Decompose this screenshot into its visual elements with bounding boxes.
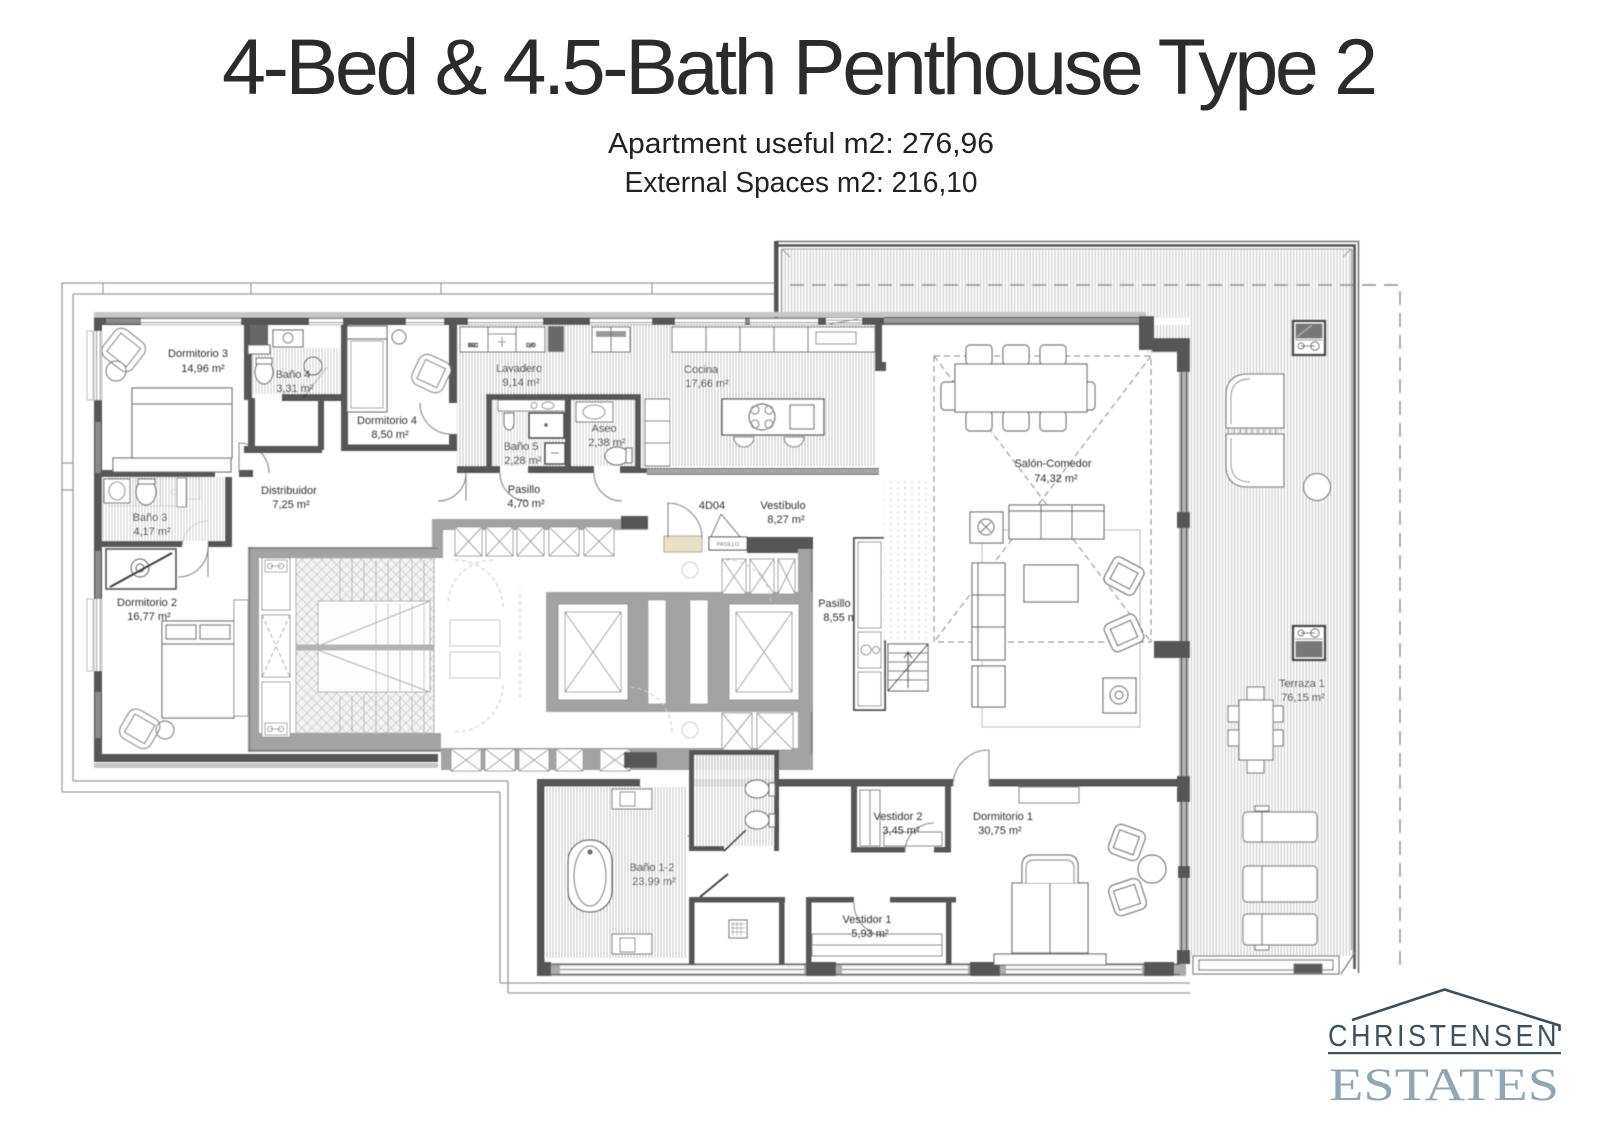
svg-text:Baño 5: Baño 5 (504, 441, 539, 453)
svg-text:External Spaces m2: 216,10: External Spaces m2: 216,10 (625, 167, 978, 199)
svg-text:Vestíbulo: Vestíbulo (760, 500, 805, 512)
svg-text:3,45 m²: 3,45 m² (882, 825, 920, 837)
svg-text:17,66 m²: 17,66 m² (685, 378, 729, 390)
svg-text:7,25 m²: 7,25 m² (272, 499, 310, 511)
svg-text:4D04: 4D04 (699, 500, 725, 512)
svg-text:Dormitorio 4: Dormitorio 4 (357, 415, 417, 427)
svg-text:SEC: SEC (468, 343, 479, 349)
svg-text:8,27 m²: 8,27 m² (767, 514, 805, 526)
svg-text:Lavadero: Lavadero (496, 363, 542, 375)
svg-text:ESTATES: ESTATES (1329, 1059, 1559, 1111)
svg-text:14,96 m²: 14,96 m² (181, 363, 225, 375)
svg-text:Apartment useful m2: 276,96: Apartment useful m2: 276,96 (608, 128, 994, 160)
svg-text:Dormitorio 3: Dormitorio 3 (168, 348, 228, 360)
svg-text:2,38 m²: 2,38 m² (588, 437, 626, 449)
svg-text:PASILLO: PASILLO (717, 542, 740, 548)
svg-text:CHRISTENSEN: CHRISTENSEN (1328, 1018, 1560, 1053)
svg-text:16,77 m²: 16,77 m² (127, 611, 171, 623)
svg-text:76,15 m²: 76,15 m² (1281, 692, 1325, 704)
svg-text:Baño 3: Baño 3 (133, 512, 168, 524)
svg-text:Vestidor 2: Vestidor 2 (874, 811, 923, 823)
svg-text:23,99 m²: 23,99 m² (632, 876, 676, 888)
svg-text:Cocina: Cocina (684, 364, 719, 376)
svg-text:3,31 m²: 3,31 m² (276, 383, 314, 395)
svg-text:4-Bed & 4.5-Bath Penthouse Typ: 4-Bed & 4.5-Bath Penthouse Type 2 (222, 22, 1378, 111)
svg-text:9,14 m²: 9,14 m² (502, 377, 540, 389)
svg-text:Vestidor 1: Vestidor 1 (843, 914, 892, 926)
svg-text:8,50 m²: 8,50 m² (371, 429, 409, 441)
svg-text:Dormitorio 1: Dormitorio 1 (973, 811, 1033, 823)
svg-text:Baño 4: Baño 4 (276, 369, 311, 381)
svg-text:4,70 m²: 4,70 m² (507, 498, 545, 510)
svg-text:LVD: LVD (526, 343, 536, 349)
svg-text:Distribuidor: Distribuidor (261, 485, 317, 497)
svg-text:2,28 m²: 2,28 m² (504, 455, 542, 467)
svg-text:5,93 m²: 5,93 m² (851, 928, 889, 940)
svg-text:Aseo: Aseo (591, 423, 616, 435)
svg-text:74,32 m²: 74,32 m² (1034, 473, 1078, 485)
svg-text:Dormitorio 2: Dormitorio 2 (117, 597, 177, 609)
svg-text:Salón-Comedor: Salón-Comedor (1014, 458, 1091, 470)
svg-text:Terraza 1: Terraza 1 (1279, 678, 1325, 690)
svg-text:4,17 m²: 4,17 m² (133, 526, 171, 538)
svg-text:Pasillo: Pasillo (508, 484, 540, 496)
svg-text:30,75 m²: 30,75 m² (978, 825, 1022, 837)
svg-text:Baño 1-2: Baño 1-2 (630, 862, 675, 874)
